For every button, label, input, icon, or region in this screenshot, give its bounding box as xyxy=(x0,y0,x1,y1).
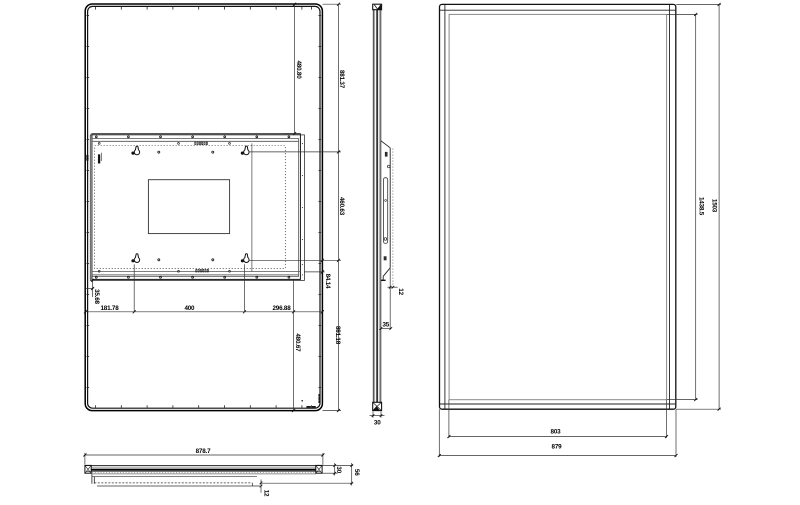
svg-text:881.18: 881.18 xyxy=(334,326,341,345)
svg-text:296.88: 296.88 xyxy=(272,305,291,312)
svg-text:84.14: 84.14 xyxy=(324,274,331,289)
svg-text:181.78: 181.78 xyxy=(100,305,119,312)
svg-text:35.68: 35.68 xyxy=(93,289,100,304)
svg-text:400: 400 xyxy=(184,305,195,312)
svg-text:56: 56 xyxy=(353,469,360,476)
svg-text:30: 30 xyxy=(335,466,342,473)
svg-text:803: 803 xyxy=(551,429,562,436)
svg-text:12: 12 xyxy=(397,288,404,295)
svg-text:35: 35 xyxy=(382,321,389,328)
svg-text:881.37: 881.37 xyxy=(338,70,345,89)
svg-text:1438.5: 1438.5 xyxy=(697,197,704,216)
svg-text:480.80: 480.80 xyxy=(295,60,302,79)
svg-text:30: 30 xyxy=(374,420,381,427)
svg-text:879: 879 xyxy=(552,444,563,451)
svg-text:12: 12 xyxy=(262,490,269,497)
svg-text:1503: 1503 xyxy=(711,199,718,213)
svg-text:878.7: 878.7 xyxy=(196,448,211,455)
svg-text:480.67: 480.67 xyxy=(294,333,301,352)
svg-text:460.63: 460.63 xyxy=(338,197,345,216)
